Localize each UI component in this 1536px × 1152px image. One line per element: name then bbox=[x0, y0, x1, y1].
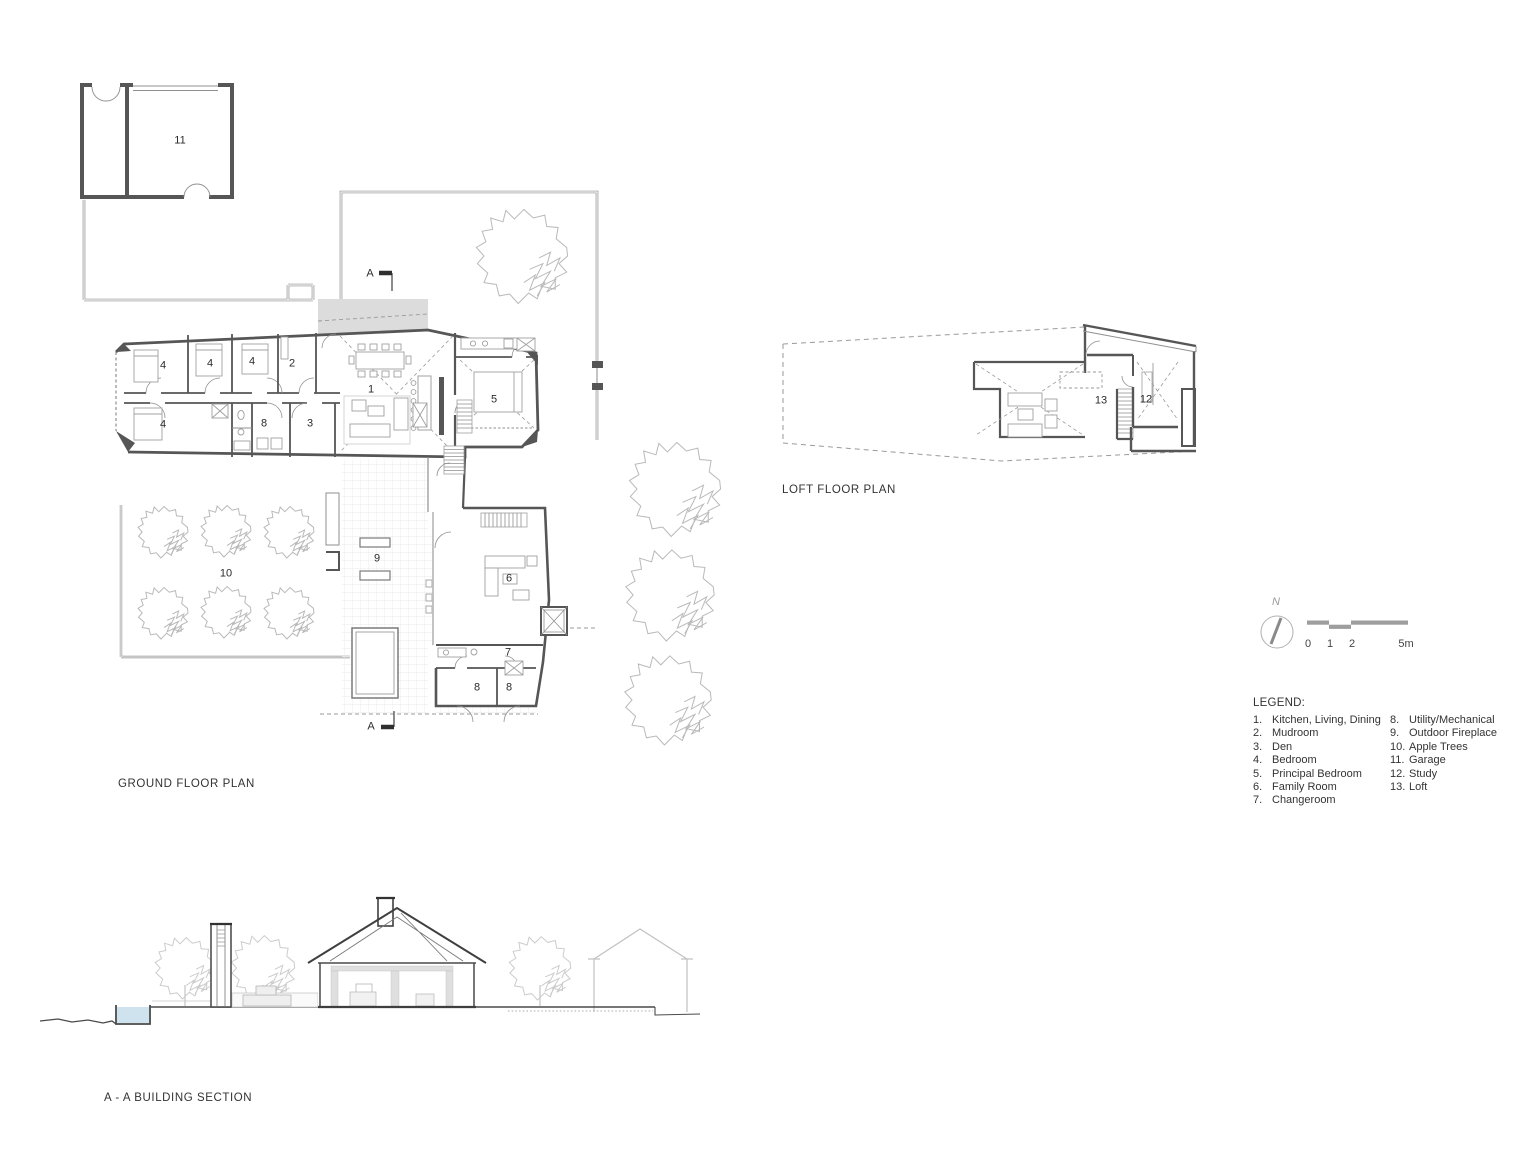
legend-column-2: 8.Utility/Mechanical9.Outdoor Fireplace1… bbox=[1390, 714, 1497, 808]
legend-item: 8.Utility/Mechanical bbox=[1390, 714, 1497, 727]
apple-tree-icon bbox=[201, 506, 251, 557]
room-label: 9 bbox=[374, 554, 380, 565]
apple-tree-icon bbox=[264, 507, 314, 558]
room-label: 13 bbox=[1095, 396, 1107, 407]
tree-icon bbox=[476, 209, 567, 303]
room-label: 7 bbox=[505, 648, 511, 659]
room-label: 5 bbox=[491, 395, 497, 406]
family-wing bbox=[433, 508, 567, 722]
family-stairs bbox=[481, 513, 527, 527]
terrain-line bbox=[40, 1019, 116, 1024]
legend-item: 6.Family Room bbox=[1253, 781, 1390, 794]
tree-icon bbox=[625, 656, 711, 745]
tree-icon bbox=[629, 442, 720, 536]
planter bbox=[352, 628, 398, 698]
room-label: 8 bbox=[506, 683, 512, 694]
apple-tree-icon bbox=[264, 588, 314, 639]
room-label: 2 bbox=[289, 359, 295, 370]
room-label: 4 bbox=[249, 357, 255, 368]
garage-plan bbox=[82, 81, 232, 201]
room-label: 4 bbox=[160, 361, 166, 372]
loft-furniture bbox=[1008, 393, 1057, 437]
ground-plan-title: GROUND FLOOR PLAN bbox=[118, 778, 255, 790]
room-label: 8 bbox=[261, 419, 267, 430]
legend-heading: LEGEND: bbox=[1253, 697, 1497, 709]
loft-floor-plan bbox=[783, 325, 1196, 461]
north-label: N bbox=[1272, 596, 1280, 608]
section-house bbox=[308, 898, 486, 1007]
section-chimney bbox=[210, 924, 232, 1007]
loft-stair bbox=[457, 400, 472, 433]
legend-item: 12.Study bbox=[1390, 768, 1497, 781]
legend-item: 5.Principal Bedroom bbox=[1253, 768, 1390, 781]
outdoor-fireplace-bench bbox=[360, 538, 390, 547]
apple-tree-icon bbox=[138, 507, 188, 558]
legend-item: 13.Loft bbox=[1390, 781, 1497, 794]
scale-tick: 0 bbox=[1305, 638, 1311, 650]
sauna-box bbox=[541, 607, 567, 635]
room-label: 4 bbox=[160, 420, 166, 431]
ground-floor-plan bbox=[82, 81, 721, 745]
room-label: A bbox=[366, 269, 373, 280]
pool-water bbox=[117, 1007, 149, 1023]
legend-item: 10.Apple Trees bbox=[1390, 741, 1497, 754]
legend-item: 3.Den bbox=[1253, 741, 1390, 754]
legend-column-1: 1.Kitchen, Living, Dining2.Mudroom3.Den4… bbox=[1253, 714, 1390, 808]
apple-tree-icon bbox=[201, 587, 251, 638]
outdoor-fireplace-bench bbox=[360, 571, 390, 580]
legend-item: 2.Mudroom bbox=[1253, 727, 1390, 740]
barn-outline bbox=[588, 929, 693, 1012]
tree-icon bbox=[626, 550, 714, 641]
ensuite-fixtures bbox=[461, 338, 535, 351]
room-label: 3 bbox=[307, 419, 313, 430]
legend-item: 7.Changeroom bbox=[1253, 794, 1390, 807]
legend-item: 11.Garage bbox=[1390, 754, 1497, 767]
scale-bar bbox=[1307, 621, 1408, 629]
living-furniture bbox=[344, 396, 410, 444]
room-label: A bbox=[367, 722, 374, 733]
scale-tick: 5m bbox=[1398, 638, 1413, 650]
gate-post bbox=[592, 383, 603, 390]
site-trees bbox=[625, 442, 721, 745]
kitchen-cabinet bbox=[439, 377, 444, 435]
loft-plan-title: LOFT FLOOR PLAN bbox=[782, 484, 896, 496]
legend: LEGEND: 1.Kitchen, Living, Dining2.Mudro… bbox=[1253, 697, 1497, 808]
main-house bbox=[116, 330, 538, 457]
section-title: A - A BUILDING SECTION bbox=[104, 1092, 252, 1104]
legend-item: 4.Bedroom bbox=[1253, 754, 1390, 767]
scale-tick: 2 bbox=[1349, 638, 1355, 650]
north-arrow bbox=[1261, 616, 1293, 648]
drawing-sheet: GROUND FLOOR PLAN LOFT FLOOR PLAN A - A … bbox=[0, 0, 1536, 1152]
room-label: 6 bbox=[506, 574, 512, 585]
scale-tick: 1 bbox=[1327, 638, 1333, 650]
room-label: 11 bbox=[174, 136, 185, 147]
legend-item: 9.Outdoor Fireplace bbox=[1390, 727, 1497, 740]
gate-post bbox=[592, 361, 603, 368]
apple-tree-icon bbox=[138, 588, 188, 639]
room-label: 12 bbox=[1140, 395, 1152, 406]
building-section bbox=[40, 898, 700, 1024]
room-label: 8 bbox=[474, 683, 480, 694]
room-label: 1 bbox=[368, 385, 374, 396]
legend-item: 1.Kitchen, Living, Dining bbox=[1253, 714, 1390, 727]
room-label: 10 bbox=[220, 569, 232, 580]
room-label: 4 bbox=[207, 359, 213, 370]
